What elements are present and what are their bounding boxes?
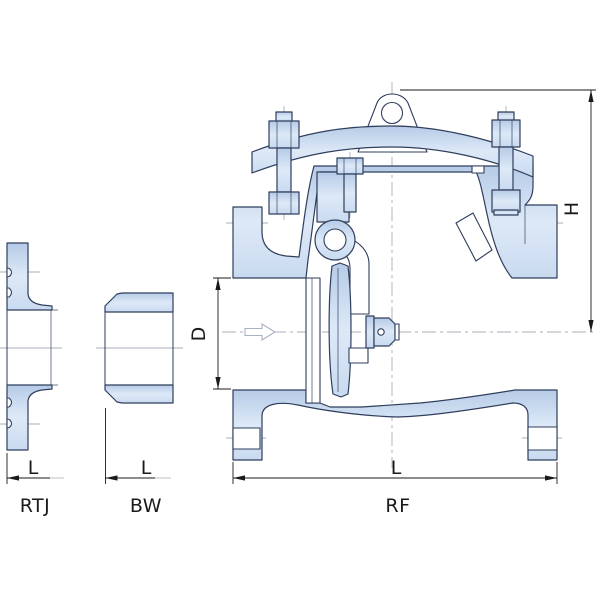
left-flange-bolt-hole <box>233 428 260 449</box>
arm-boss-lower <box>349 348 368 363</box>
rtj-bolt-notch-lower <box>7 419 12 428</box>
dim-d-arrow-down <box>215 377 220 389</box>
seat-ring <box>306 278 320 403</box>
dim-l-bw-label: L <box>141 457 152 479</box>
right-flange-bolt-hole <box>528 427 557 450</box>
disc-washer <box>366 316 374 348</box>
rtj-flange-lower <box>7 385 52 450</box>
hinge-pin <box>324 229 346 251</box>
valve-engineering-drawing: L L L D H RTJ BW RF <box>0 0 600 600</box>
dim-l-bw-arrow <box>106 475 118 480</box>
view-label-bw: BW <box>130 495 162 517</box>
dim-l-rtj-arrow <box>7 475 19 480</box>
disc <box>329 263 351 397</box>
dim-l-rf-label: L <box>391 457 402 479</box>
valve-drawing-canvas: L L L D H RTJ BW RF <box>0 0 600 600</box>
view-label-rf: RF <box>385 495 410 517</box>
lifting-lug-hole <box>382 103 403 124</box>
disc-stop-lug <box>456 213 492 261</box>
cotter-pin-hole <box>378 329 384 335</box>
flow-direction-arrow-icon <box>245 324 275 340</box>
dim-h-arrow-down <box>588 320 593 332</box>
rtj-flange-upper <box>7 243 52 310</box>
bw-bevel-upper <box>105 293 173 312</box>
dim-d-label: D <box>188 327 210 342</box>
view-label-rtj: RTJ <box>20 495 51 517</box>
view-rf-valve-section <box>233 94 557 460</box>
view-rtj-flange <box>7 243 58 450</box>
dim-d-arrow-up <box>215 278 220 290</box>
dim-l-rf-arrow-left <box>233 475 245 480</box>
dim-l-rtj-label: L <box>28 457 39 479</box>
dim-l-rf-arrow-right <box>545 475 557 480</box>
rtj-bolt-notch-upper <box>7 268 12 277</box>
valve-body-lower <box>233 390 557 460</box>
gasket-notch <box>472 166 484 173</box>
rtj-groove-upper <box>7 288 12 297</box>
bw-bevel-lower <box>105 385 173 403</box>
dim-h-arrow-up <box>588 90 593 102</box>
rtj-groove-lower <box>7 398 12 407</box>
dim-h-label: H <box>561 202 583 216</box>
disc-nut-retainer <box>395 324 399 340</box>
